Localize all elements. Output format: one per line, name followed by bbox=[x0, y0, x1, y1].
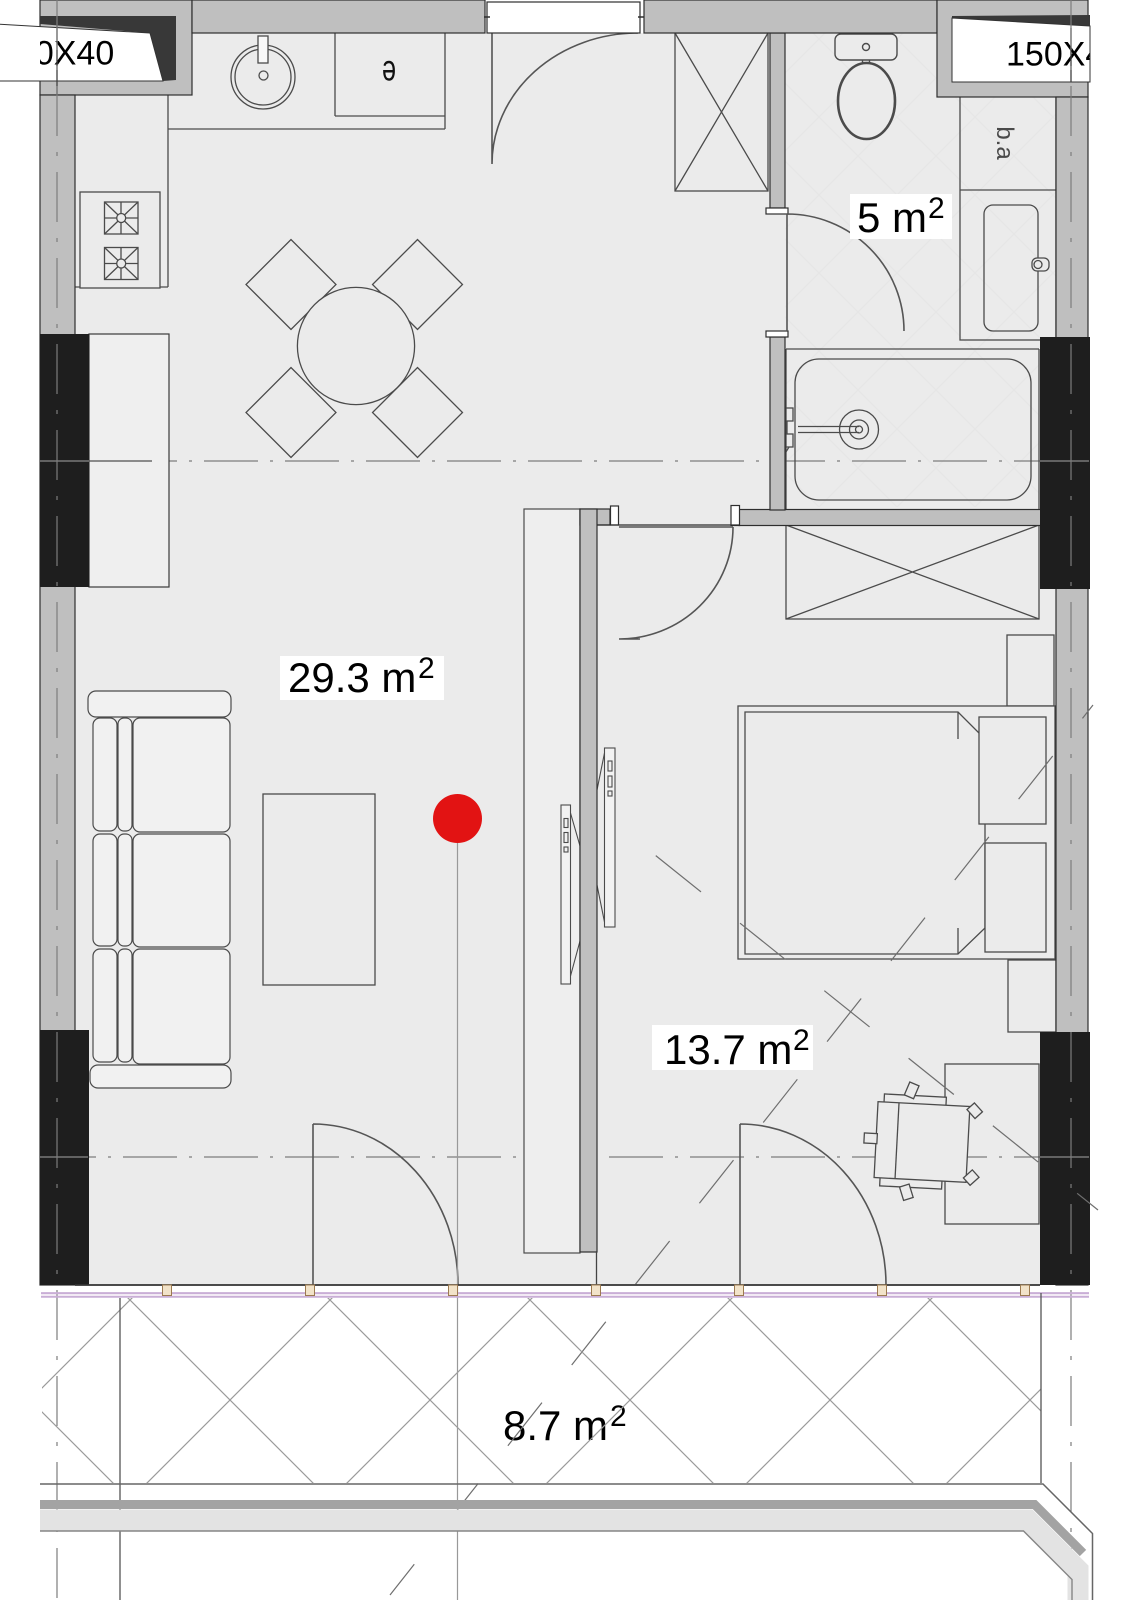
svg-text:b.a: b.a bbox=[991, 126, 1018, 160]
svg-text:2: 2 bbox=[928, 192, 945, 225]
svg-text:13.7 m: 13.7 m bbox=[664, 1026, 792, 1073]
svg-text:5 m: 5 m bbox=[857, 194, 927, 241]
svg-text:29.3 m: 29.3 m bbox=[288, 654, 416, 701]
svg-text:2: 2 bbox=[793, 1024, 810, 1057]
svg-text:e: e bbox=[382, 53, 396, 94]
svg-text:2: 2 bbox=[418, 652, 435, 685]
